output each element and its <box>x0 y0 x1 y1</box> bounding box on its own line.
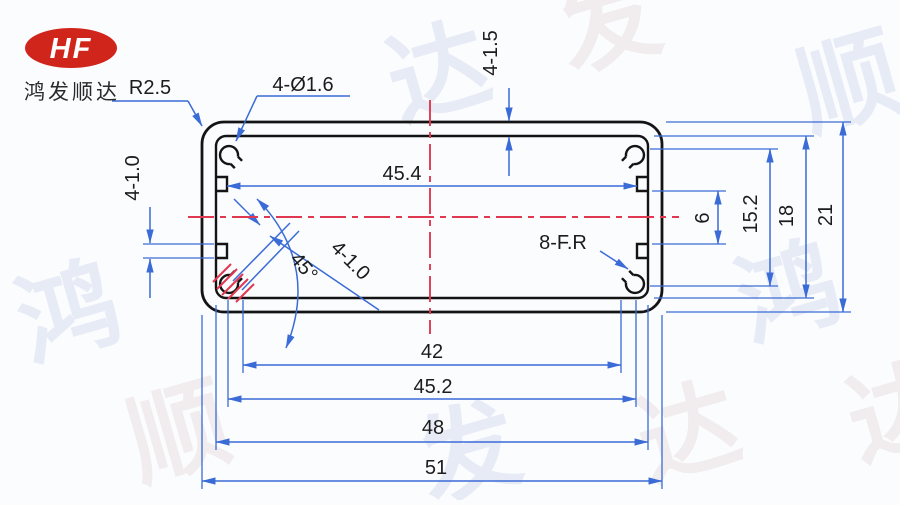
dim-45-4-label: 45.4 <box>383 163 422 185</box>
dim-4-1-0-diagonal-label: 4-1.0 <box>326 237 374 285</box>
dim-42-label: 42 <box>421 341 443 363</box>
leader-fillets <box>600 251 628 269</box>
dim-45-degree-label: 45° <box>285 248 321 285</box>
dim-21-label: 21 <box>815 204 837 226</box>
screw-boss-bottom-right <box>622 271 644 293</box>
dim-18-label: 18 <box>776 205 798 227</box>
watermark-char: 鸿 <box>5 246 132 381</box>
label-8-fr: 8-F.R <box>539 232 587 254</box>
technical-drawing: 达 顺 发 鸿 达 发 顺 鸿 达 <box>0 0 900 500</box>
watermark-char: 顺 <box>115 366 242 500</box>
watermark-char: 发 <box>545 0 672 91</box>
watermark-char: 发 <box>405 386 532 500</box>
watermark-layer: 达 顺 发 鸿 达 发 顺 鸿 达 <box>5 0 900 500</box>
watermark-char: 鸿 <box>725 226 852 361</box>
logo-company-name: 鸿发顺达 <box>24 81 120 104</box>
leader-holes <box>236 96 257 141</box>
dim-48-label: 48 <box>422 417 444 439</box>
screw-boss-top-left <box>220 146 242 168</box>
company-logo: HF 鸿发顺达 <box>24 28 120 104</box>
logo-brand-text: HF <box>50 33 93 65</box>
card-guide-right-bottom <box>637 244 648 258</box>
dim-45-2-label: 45.2 <box>414 376 453 398</box>
dim-4-1-0-left-label: 4-1.0 <box>122 155 144 201</box>
card-guide-left-bottom <box>216 244 227 258</box>
drawing-page: 达 顺 发 鸿 达 发 顺 鸿 达 <box>0 0 900 500</box>
screw-boss-top-right <box>622 146 644 168</box>
watermark-char: 达 <box>625 366 752 500</box>
card-guide-left-top <box>216 177 227 191</box>
label-r2-5: R2.5 <box>129 77 171 99</box>
label-4-holes: 4-Ø1.6 <box>272 74 333 96</box>
angle-arc-45 <box>257 199 298 348</box>
watermark-char: 达 <box>835 346 900 481</box>
leader-r25 <box>188 101 202 126</box>
card-guide-right-top <box>637 177 648 191</box>
dim-51-label: 51 <box>425 457 447 479</box>
dim-4-1-5-label: 4-1.5 <box>480 30 502 76</box>
slot-dim-arrow-upper <box>234 199 260 225</box>
dim-6-label: 6 <box>692 212 714 223</box>
dim-15-2-label: 15.2 <box>740 195 762 234</box>
